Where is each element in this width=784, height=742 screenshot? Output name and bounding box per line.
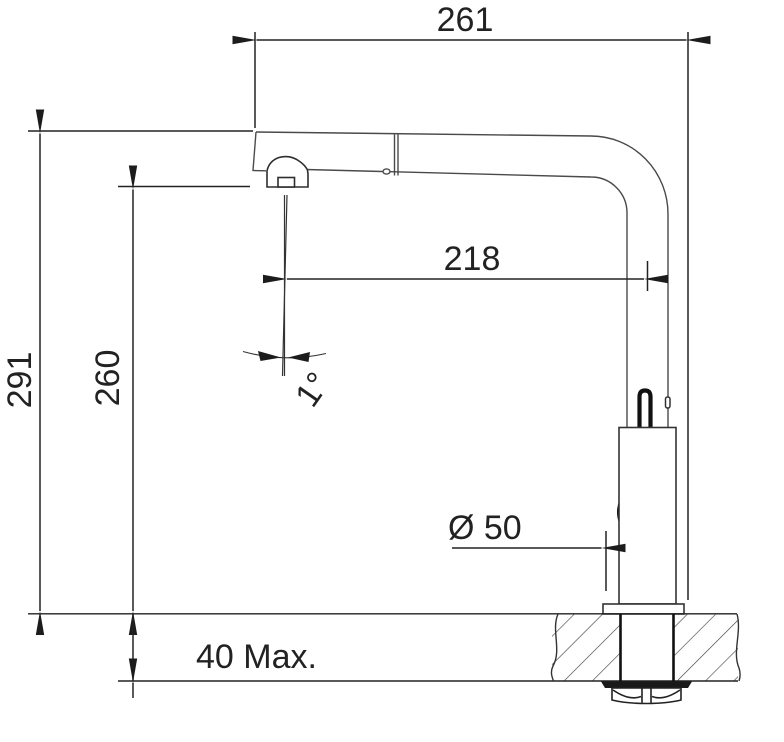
- angle-label: 1°: [288, 365, 338, 413]
- joint-detail: [383, 169, 390, 174]
- mounting-nut: [612, 688, 681, 704]
- base-flange: [603, 604, 684, 614]
- faucet-base: [603, 428, 684, 615]
- spout-tip: [253, 132, 266, 171]
- dim-base-diameter-label: Ø 50: [448, 509, 522, 547]
- technical-drawing-canvas: 261 218 291 260 40 Max. 1° Ø 50: [0, 0, 784, 742]
- body-clip-detail: [666, 397, 671, 408]
- spray-head: [267, 157, 308, 187]
- angle-arrow-left: [258, 351, 281, 361]
- spout-bottom-and-inner-bend: [306, 170, 627, 428]
- dim-width-total-label: 261: [437, 1, 494, 39]
- angle-arrow-right: [288, 352, 310, 362]
- dim-height-spout-label: 260: [89, 350, 127, 407]
- dim-height-total: [28, 131, 253, 611]
- faucet-dimension-drawing: 261 218 291 260 40 Max. 1° Ø 50: [0, 0, 784, 742]
- dim-spout-reach-label: 218: [444, 240, 501, 278]
- body-housing: [619, 428, 676, 605]
- angle-detail: [243, 195, 326, 376]
- aerator-notch: [278, 178, 295, 188]
- dim-height-spout: [118, 187, 250, 612]
- sprayhead-joint-line: [395, 135, 399, 176]
- countertop-hatch-right: [674, 614, 738, 681]
- dim-height-total-label: 291: [1, 352, 39, 409]
- countertop-section: [28, 614, 740, 704]
- washer: [601, 682, 692, 689]
- dim-deck-thickness-label: 40 Max.: [196, 638, 317, 676]
- countertop-hatch-left: [552, 614, 620, 681]
